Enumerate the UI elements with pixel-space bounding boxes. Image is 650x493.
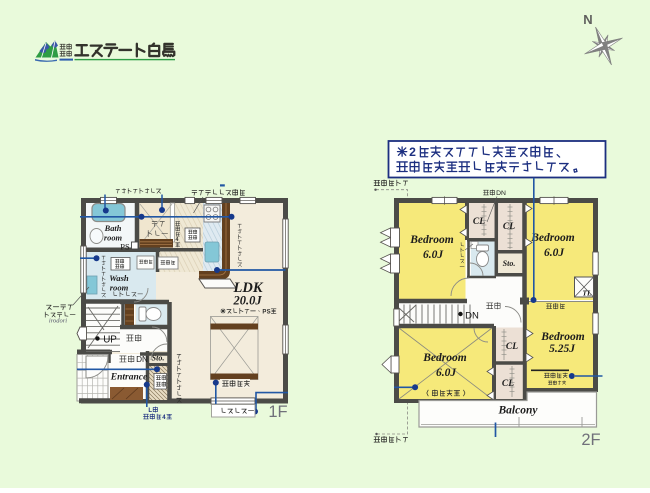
svg-text:PS: PS [120, 242, 130, 252]
svg-text:CL: CL [502, 379, 514, 389]
svg-text:TL: TL [582, 289, 592, 298]
svg-text:Bedroom: Bedroom [540, 331, 585, 343]
svg-text:Sto.: Sto. [503, 259, 516, 268]
svg-text:6.0J: 6.0J [423, 249, 444, 261]
svg-text:DN: DN [465, 311, 479, 322]
svg-text:DN: DN [496, 190, 506, 197]
svg-text:N: N [583, 12, 592, 27]
svg-text:room: room [110, 283, 129, 293]
svg-text:S: S [267, 309, 271, 315]
svg-text:irodori: irodori [49, 318, 67, 325]
svg-text:Wash: Wash [109, 273, 129, 283]
svg-text:20.0J: 20.0J [232, 294, 262, 308]
svg-text:1F: 1F [268, 403, 287, 421]
svg-text:CL: CL [503, 222, 515, 232]
svg-text:5.25J: 5.25J [549, 343, 576, 355]
svg-text:CL: CL [473, 217, 485, 227]
svg-text:6.0J: 6.0J [544, 247, 565, 259]
svg-text:6.0J: 6.0J [436, 367, 457, 379]
svg-text:2F: 2F [581, 431, 600, 449]
svg-text:Entrance: Entrance [110, 373, 148, 383]
svg-text:Balcony: Balcony [498, 405, 539, 417]
svg-text:UP: UP [103, 335, 117, 346]
svg-text:DN: DN [136, 355, 148, 364]
svg-text:Bedroom: Bedroom [409, 234, 454, 246]
svg-text:Bedroom: Bedroom [530, 232, 575, 244]
svg-text:Bedroom: Bedroom [422, 352, 467, 364]
svg-text:4: 4 [176, 237, 179, 243]
svg-text:2: 2 [409, 145, 416, 159]
svg-text:Sto.: Sto. [152, 354, 165, 363]
svg-text:CL: CL [506, 342, 518, 352]
svg-text:Bath: Bath [104, 224, 122, 233]
svg-text:L: L [148, 408, 152, 414]
